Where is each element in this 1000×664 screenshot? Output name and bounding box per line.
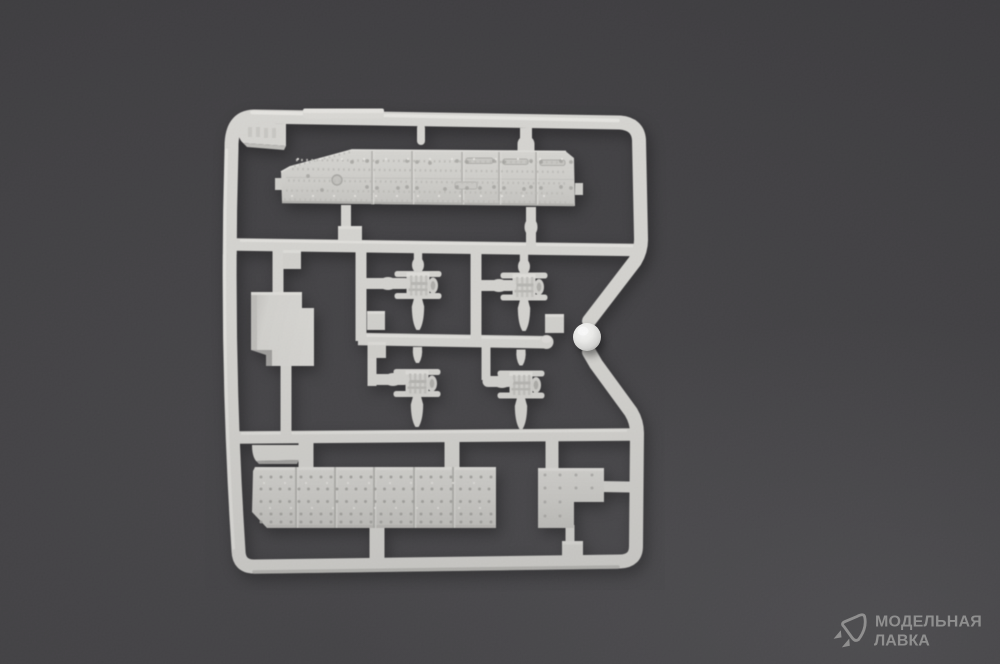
svg-text:ЛАВКА: ЛАВКА <box>874 633 930 650</box>
svg-text:МОДЕЛЬНАЯ: МОДЕЛЬНАЯ <box>875 614 982 631</box>
